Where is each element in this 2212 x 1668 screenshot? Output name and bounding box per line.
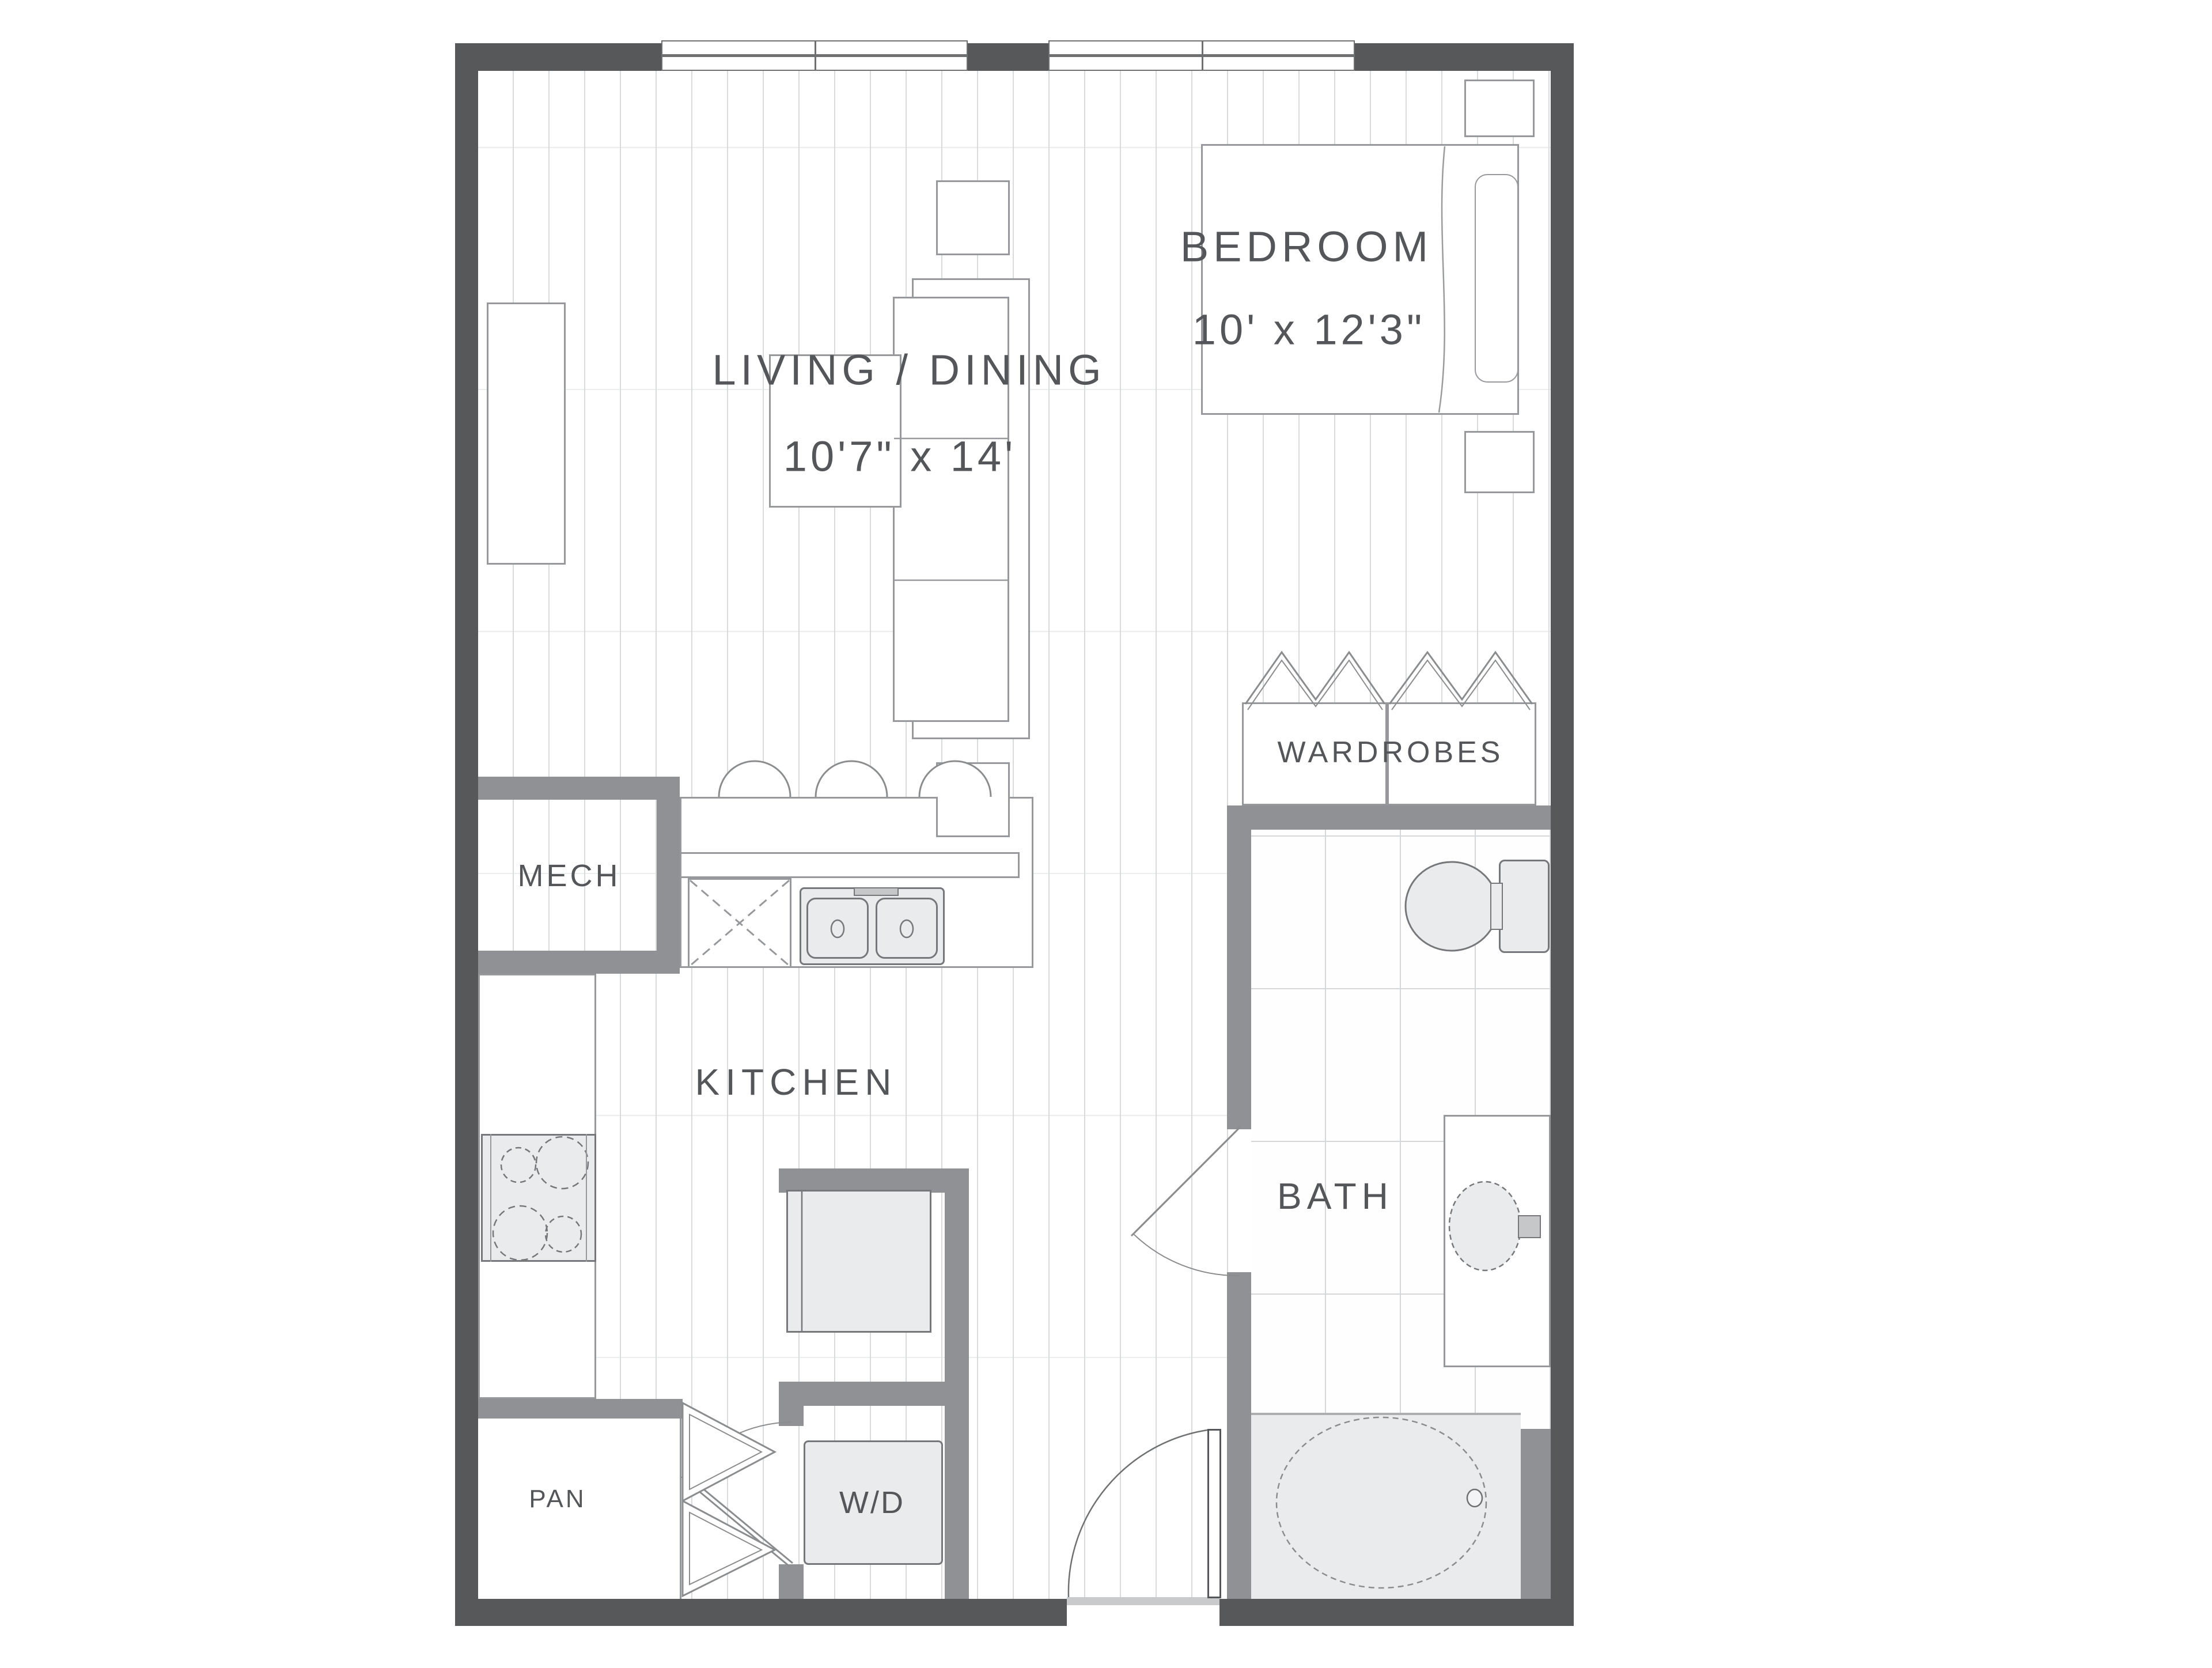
wardrobes-label: WARDROBES: [1278, 735, 1504, 770]
pillow: [1475, 174, 1518, 383]
refrigerator: [786, 1190, 931, 1333]
pantry-wall-top: [478, 1399, 683, 1419]
entry-door-leaf: [1207, 1429, 1221, 1598]
side-table-top: [936, 180, 1010, 255]
mech-wall-bottom: [478, 951, 680, 974]
laundry-label: W/D: [839, 1485, 905, 1521]
window-living: [661, 40, 968, 71]
tub-surround-wall: [1521, 1429, 1551, 1599]
floor-plan: LIVING / DINING 10'7" x 14' BEDROOM 10' …: [0, 0, 2212, 1668]
bathtub-deck: [1251, 1413, 1521, 1599]
nightstand-bottom: [1464, 431, 1535, 493]
laundry-wall-mid: [779, 1382, 969, 1406]
pantry-label: PAN: [529, 1485, 586, 1514]
bath-wall-west-upper: [1227, 805, 1251, 1129]
toilet-tank: [1499, 860, 1550, 953]
bedroom-label: BEDROOM: [1180, 222, 1433, 271]
outer-wall-bottom-a: [455, 1599, 1067, 1626]
outer-wall-top-a: [455, 43, 661, 71]
entry-threshold: [1067, 1597, 1219, 1605]
bed: [1201, 144, 1519, 415]
dishwasher: [688, 878, 791, 968]
living-dining-label: LIVING / DINING: [712, 346, 1105, 395]
bath-label: BATH: [1277, 1175, 1393, 1217]
stove: [481, 1134, 596, 1262]
bath-wall-west-lower: [1227, 1272, 1251, 1599]
outer-wall-top-c: [1355, 43, 1574, 71]
kitchen-label: KITCHEN: [695, 1061, 897, 1103]
sink-basin-left: [806, 898, 869, 959]
outer-wall-top-b: [968, 43, 1048, 71]
laundry-doorjamb-top: [779, 1382, 804, 1426]
mech-wall-right: [657, 777, 680, 974]
window-mullion: [815, 41, 816, 70]
outer-wall-bottom-b: [1219, 1599, 1574, 1626]
laundry-wall-top: [779, 1168, 969, 1193]
sink-faucet: [854, 887, 899, 896]
mech-wall-top: [478, 777, 680, 800]
media-console: [487, 302, 566, 565]
bath-vanity: [1444, 1115, 1551, 1367]
window-bedroom: [1048, 40, 1355, 71]
mech-label: MECH: [518, 858, 621, 894]
laundry-doorjamb-bottom: [779, 1564, 804, 1599]
outer-wall-left: [455, 43, 478, 1626]
sink-basin-right: [876, 898, 938, 959]
nightstand-top: [1464, 80, 1535, 137]
bath-wall-top: [1227, 805, 1551, 830]
side-table-bottom: [936, 762, 1010, 837]
island-counter-overhang: [680, 852, 1020, 878]
outer-wall-right: [1551, 43, 1574, 1626]
window-mullion: [1202, 41, 1203, 70]
bedroom-dims: 10' x 12'3": [1192, 305, 1425, 354]
living-dining-dims: 10'7" x 14': [783, 432, 1016, 481]
